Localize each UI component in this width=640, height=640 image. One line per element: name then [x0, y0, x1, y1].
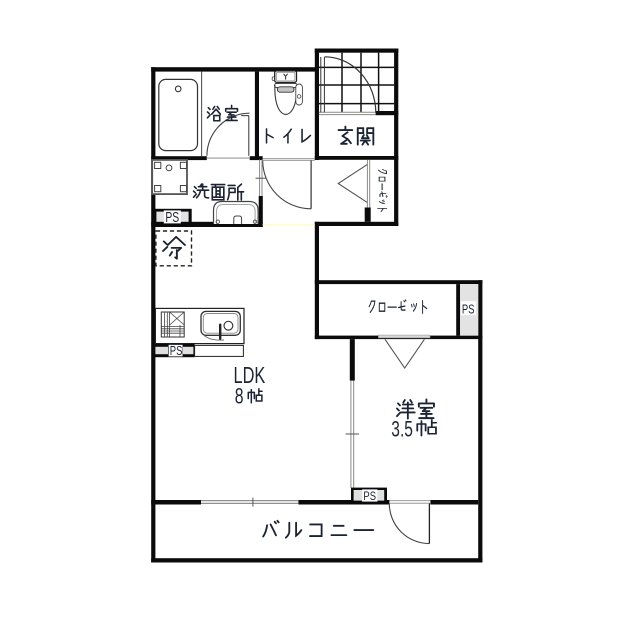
svg-text:8: 8 [235, 384, 244, 409]
svg-text:PS: PS [462, 301, 475, 316]
svg-text:3.5: 3.5 [391, 416, 413, 441]
svg-text:PS: PS [363, 491, 376, 503]
svg-text:PS: PS [165, 210, 179, 226]
svg-text:PS: PS [170, 343, 183, 358]
